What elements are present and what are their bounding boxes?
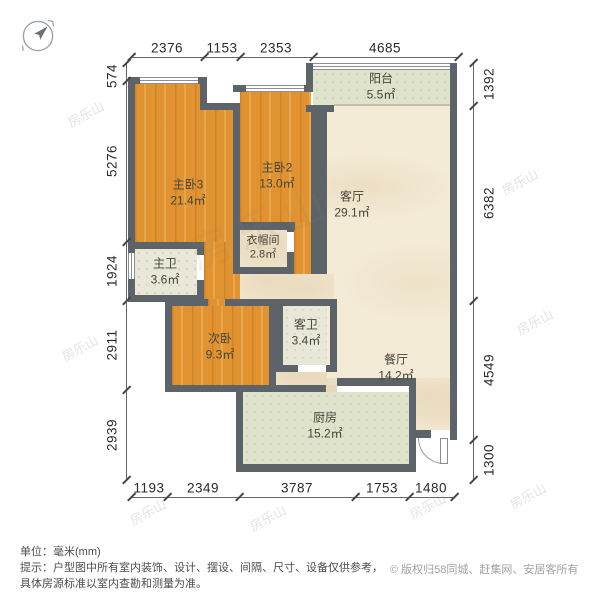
room-name: 主卧3 (170, 177, 205, 193)
dim-label-bottom: 1753 (366, 481, 398, 496)
wall (330, 299, 337, 372)
window (246, 85, 304, 92)
room-name: 厨房 (307, 410, 342, 426)
dim-label-top: 2353 (260, 41, 292, 56)
floor-kitchen-doorway (326, 385, 337, 392)
watermark: 房乐山 (506, 478, 549, 513)
floor-hallway-door-gap (208, 299, 225, 306)
room-label-living-room: 客厅 29.1㎡ (334, 189, 369, 220)
wall (276, 299, 337, 306)
dimension-line-top (131, 57, 458, 58)
window (128, 253, 135, 279)
dim-label-right: 6382 (482, 187, 497, 219)
wall (276, 385, 326, 392)
room-area: 21.4㎡ (170, 193, 205, 209)
dim-label-right: 4549 (482, 354, 497, 386)
room-label-secondary-bedroom: 次卧 9.3㎡ (206, 331, 235, 362)
dim-label-left: 2939 (105, 419, 120, 451)
footer-copyright: © 版权归58同城、赶集网、安居客所有 (390, 561, 578, 577)
wall (276, 365, 298, 372)
watermark: 房乐山 (513, 304, 556, 339)
room-area: 9.3㎡ (206, 347, 235, 363)
room-name: 阳台 (367, 71, 396, 87)
footer-tip-line1: 提示：户型图中所有室内装饰、设计、摆设、间隔、尺寸、设备仅供参考， (20, 559, 383, 575)
wall (165, 299, 208, 306)
wall (233, 267, 294, 274)
window (140, 77, 198, 84)
room-label-master-bathroom: 主卫 3.6㎡ (151, 256, 180, 287)
watermark: 房乐山 (126, 494, 169, 529)
entry-door (440, 438, 448, 464)
room-name: 客厅 (334, 189, 369, 205)
room-area: 29.1㎡ (334, 205, 369, 221)
wall (165, 385, 276, 392)
wall (450, 63, 457, 440)
dimension-line-left (126, 63, 127, 480)
dim-label-top: 1153 (206, 41, 237, 56)
wall (276, 299, 283, 372)
dim-label-left: 5276 (105, 145, 120, 177)
room-area: 3.4㎡ (292, 333, 321, 349)
dim-label-right: 1300 (482, 444, 497, 476)
dim-label-top: 2376 (151, 41, 183, 56)
room-label-balcony: 阳台 5.5㎡ (367, 71, 396, 102)
footer-tip-line2: 具体房源标准以室内查勘和测量为准。 (20, 575, 207, 591)
dim-label-bottom: 3787 (281, 481, 313, 496)
watermark: 房乐山 (58, 330, 101, 365)
room-name: 客卫 (292, 317, 321, 333)
footer-unit-label: 单位：毫米(mm) (20, 543, 101, 559)
wall (306, 105, 334, 112)
wall (409, 378, 416, 472)
dimension-line-right (473, 63, 474, 480)
room-label-dining-room: 餐厅 14.2㎡ (378, 352, 413, 383)
floor-hall (240, 274, 334, 299)
watermark: 房乐山 (64, 96, 107, 131)
room-label-kitchen: 厨房 15.2㎡ (307, 410, 342, 441)
watermark: 房乐山 (246, 500, 289, 535)
room-area: 3.6㎡ (151, 272, 180, 288)
balcony-railing-window (313, 63, 450, 70)
floor-living-dining (327, 105, 450, 378)
floor-bedroom3 (135, 84, 200, 110)
room-label-guest-bathroom: 客卫 3.4㎡ (292, 317, 321, 348)
dim-label-left: 574 (105, 64, 120, 88)
watermark: 房乐山 (498, 164, 541, 199)
room-area: 15.2㎡ (307, 426, 342, 442)
room-name: 主卫 (151, 256, 180, 272)
balcony-living-divider (334, 104, 450, 106)
room-area: 5.5㎡ (367, 87, 396, 103)
room-name: 餐厅 (378, 352, 413, 368)
dim-label-bottom: 2349 (187, 481, 219, 496)
dim-label-left: 1924 (105, 255, 120, 287)
floorplan-canvas: 主卧3 21.4㎡ 主卧2 13.0㎡ 阳台 5.5㎡ 客厅 29.1㎡ 衣帽间… (0, 0, 600, 600)
room-label-bedroom3: 主卧3 21.4㎡ (170, 177, 205, 208)
wall (236, 385, 243, 472)
wall (165, 299, 172, 392)
wall (326, 365, 337, 372)
floor-dining-lower (416, 378, 450, 430)
wall (236, 464, 416, 472)
room-area: 14.2㎡ (378, 368, 413, 384)
dim-label-left: 2911 (105, 329, 120, 360)
dim-label-right: 1392 (482, 68, 497, 100)
compass-icon (14, 12, 62, 60)
dim-label-top: 4685 (369, 41, 401, 56)
wall (269, 299, 276, 392)
room-name: 次卧 (206, 331, 235, 347)
wall (409, 430, 431, 438)
room-name: 主卧2 (259, 160, 294, 176)
